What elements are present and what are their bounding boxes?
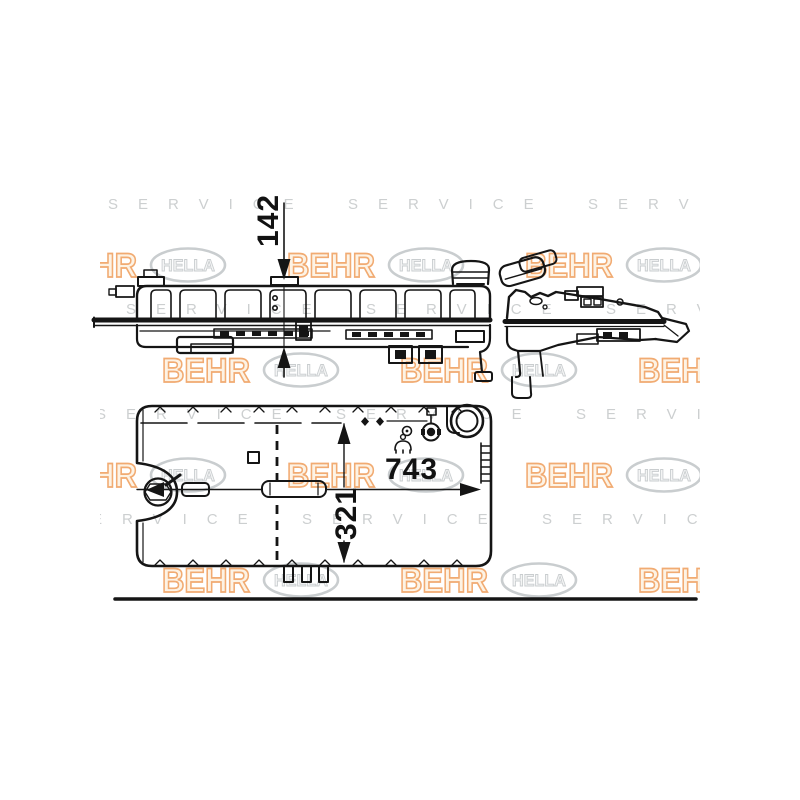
hella-watermark: HELLA — [264, 354, 338, 387]
arrow-right-icon — [460, 483, 481, 496]
hella-watermark: HELLA — [502, 564, 576, 597]
svg-text:HELLA: HELLA — [399, 256, 453, 275]
arrow-up-icon — [338, 423, 351, 444]
brand-watermark-pattern: SERVICESERVICESERVICE SERVICESERVICESERV… — [49, 196, 800, 600]
svg-text:HELLA: HELLA — [161, 256, 215, 275]
service-watermark-row: SERVICESERVICESERVICE — [126, 301, 800, 318]
hella-watermark: HELLA — [627, 459, 701, 492]
behr-watermark: BEHR — [287, 247, 375, 285]
behr-watermark: BEHR — [49, 457, 137, 495]
behr-watermark: BEHR — [49, 247, 137, 285]
svg-text:HELLA: HELLA — [512, 571, 566, 590]
behr-watermark: BEHR — [400, 562, 488, 600]
expansion-tank-technical-drawing: SERVICESERVICESERVICE SERVICESERVICESERV… — [0, 0, 800, 800]
behr-watermark: BEHR — [162, 352, 250, 390]
service-watermark-row: SERVICESERVICESERVICE — [96, 406, 782, 423]
behr-watermark: BEHR — [400, 352, 488, 390]
svg-text:HELLA: HELLA — [637, 256, 691, 275]
dimension-142-label: 142 — [252, 194, 285, 247]
drain-symbol-icon — [395, 435, 411, 453]
service-watermark-row: SERVICESERVICESERVICE — [108, 196, 794, 213]
behr-watermark: BEHR — [525, 457, 613, 495]
behr-watermark: BEHR — [638, 352, 726, 390]
dimension-321: 321 — [330, 423, 363, 563]
drain-spout — [512, 377, 531, 398]
svg-text:HELLA: HELLA — [637, 466, 691, 485]
arrow-down-icon — [338, 542, 351, 563]
behr-watermark: BEHR — [162, 562, 250, 600]
hella-watermark: HELLA — [502, 354, 576, 387]
product-technical-drawing-page: SERVICESERVICESERVICE SERVICESERVICESERV… — [0, 0, 800, 800]
dimension-321-label: 321 — [330, 487, 363, 540]
dimension-743-label: 743 — [385, 453, 438, 486]
hella-watermark: HELLA — [627, 249, 701, 282]
behr-watermark: BEHR — [638, 562, 726, 600]
